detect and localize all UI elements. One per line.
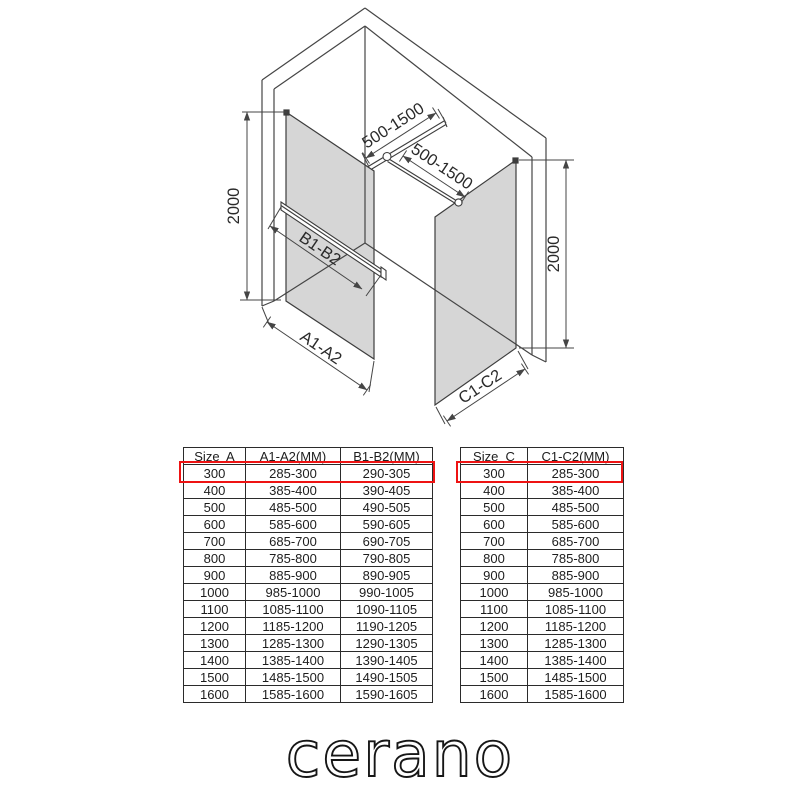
table-cell: 885-900 bbox=[246, 567, 341, 584]
table-cell: 1100 bbox=[184, 601, 246, 618]
table-row: 400385-400 bbox=[461, 482, 624, 499]
table-cell: 500 bbox=[184, 499, 246, 516]
table-cell: 1000 bbox=[461, 584, 528, 601]
table-header-row: Size A A1-A2(MM) B1-B2(MM) bbox=[184, 448, 433, 465]
table-cell: 300 bbox=[461, 465, 528, 482]
table-cell: 400 bbox=[461, 482, 528, 499]
table-row: 500485-500 bbox=[461, 499, 624, 516]
table-row: 16001585-16001590-1605 bbox=[184, 686, 433, 703]
table-cell: 885-900 bbox=[528, 567, 624, 584]
table-row: 15001485-1500 bbox=[461, 669, 624, 686]
table-row: 600585-600 bbox=[461, 516, 624, 533]
table-cell: 985-1000 bbox=[246, 584, 341, 601]
table-row: 600585-600590-605 bbox=[184, 516, 433, 533]
table-row: 14001385-1400 bbox=[461, 652, 624, 669]
table-row: 700685-700 bbox=[461, 533, 624, 550]
table-row: 14001385-14001390-1405 bbox=[184, 652, 433, 669]
table-cell: 485-500 bbox=[528, 499, 624, 516]
table-cell: 585-600 bbox=[528, 516, 624, 533]
dim-tick bbox=[443, 416, 450, 427]
table-row: 15001485-15001490-1505 bbox=[184, 669, 433, 686]
dim-ext bbox=[438, 109, 446, 123]
table-cell: 390-405 bbox=[341, 482, 433, 499]
table-cell: 585-600 bbox=[246, 516, 341, 533]
table-cell: 1485-1500 bbox=[246, 669, 341, 686]
table-cell: 1100 bbox=[461, 601, 528, 618]
dim-ext bbox=[369, 361, 374, 392]
size-table-a: Size A A1-A2(MM) B1-B2(MM) 300285-300290… bbox=[183, 447, 433, 703]
brand-logo-text: cerano bbox=[286, 718, 514, 791]
table-cell: 785-800 bbox=[528, 550, 624, 567]
col-header-size-a: Size A bbox=[184, 448, 246, 465]
table-cell: 685-700 bbox=[528, 533, 624, 550]
table-cell: 600 bbox=[184, 516, 246, 533]
table-cell: 385-400 bbox=[528, 482, 624, 499]
table-cell: 1485-1500 bbox=[528, 669, 624, 686]
col-header-a1a2: A1-A2(MM) bbox=[246, 448, 341, 465]
table-cell: 1600 bbox=[461, 686, 528, 703]
table-cell: 690-705 bbox=[341, 533, 433, 550]
glass-panel-c bbox=[435, 160, 516, 405]
right-wall-bottom-bevel bbox=[532, 355, 546, 362]
table-cell: 1190-1205 bbox=[341, 618, 433, 635]
table-cell: 1590-1605 bbox=[341, 686, 433, 703]
table-cell: 290-305 bbox=[341, 465, 433, 482]
table-row: 11001085-1100 bbox=[461, 601, 624, 618]
table-cell: 1285-1300 bbox=[246, 635, 341, 652]
table-row: 1000985-1000990-1005 bbox=[184, 584, 433, 601]
left-wall-top-outer bbox=[262, 8, 365, 80]
page: 2000 2000 500-1500 500-1500 A1-A2 B1-B2 … bbox=[0, 0, 800, 800]
table-row: 500485-500490-505 bbox=[184, 499, 433, 516]
table-row: 12001185-12001190-1205 bbox=[184, 618, 433, 635]
table-cell: 1300 bbox=[461, 635, 528, 652]
size-table-c: Size C C1-C2(MM) 300285-300400385-400500… bbox=[460, 447, 624, 703]
table-cell: 1185-1200 bbox=[246, 618, 341, 635]
table-row: 1000985-1000 bbox=[461, 584, 624, 601]
left-wall-bottom-bevel bbox=[262, 301, 274, 306]
table-cell: 790-805 bbox=[341, 550, 433, 567]
table-row: 11001085-11001090-1105 bbox=[184, 601, 433, 618]
table-cell: 1000 bbox=[184, 584, 246, 601]
table-cell: 1085-1100 bbox=[246, 601, 341, 618]
table-cell: 1585-1600 bbox=[528, 686, 624, 703]
table-cell: 1385-1400 bbox=[528, 652, 624, 669]
table-row: 700685-700690-705 bbox=[184, 533, 433, 550]
table-cell: 700 bbox=[461, 533, 528, 550]
table-cell: 1400 bbox=[184, 652, 246, 669]
table-cell: 1585-1600 bbox=[246, 686, 341, 703]
table-cell: 1085-1100 bbox=[528, 601, 624, 618]
table-cell: 400 bbox=[184, 482, 246, 499]
table-cell: 900 bbox=[184, 567, 246, 584]
table-cell: 990-1005 bbox=[341, 584, 433, 601]
table-cell: 300 bbox=[184, 465, 246, 482]
table-cell: 1200 bbox=[184, 618, 246, 635]
table-row: 13001285-13001290-1305 bbox=[184, 635, 433, 652]
col-header-b1b2: B1-B2(MM) bbox=[341, 448, 433, 465]
table-row: 900885-900 bbox=[461, 567, 624, 584]
technical-drawing: 2000 2000 500-1500 500-1500 A1-A2 B1-B2 … bbox=[0, 0, 800, 445]
mount-bracket-c bbox=[513, 158, 518, 163]
table-row: 800785-800 bbox=[461, 550, 624, 567]
table-cell: 1300 bbox=[184, 635, 246, 652]
table-row: 300285-300290-305 bbox=[184, 465, 433, 482]
table-cell: 890-905 bbox=[341, 567, 433, 584]
table-cell: 1500 bbox=[184, 669, 246, 686]
table-cell: 800 bbox=[184, 550, 246, 567]
table-cell: 590-605 bbox=[341, 516, 433, 533]
table-cell: 1090-1105 bbox=[341, 601, 433, 618]
table-row: 400385-400390-405 bbox=[184, 482, 433, 499]
table-row: 300285-300 bbox=[461, 465, 624, 482]
table-row: 800785-800790-805 bbox=[184, 550, 433, 567]
table-cell: 485-500 bbox=[246, 499, 341, 516]
stabilizer-bar-endcap bbox=[381, 267, 386, 280]
table-cell: 900 bbox=[461, 567, 528, 584]
table-cell: 985-1000 bbox=[528, 584, 624, 601]
table-cell: 1185-1200 bbox=[528, 618, 624, 635]
table-cell: 285-300 bbox=[528, 465, 624, 482]
dim-label-height-left: 2000 bbox=[225, 188, 243, 225]
dim-label-bar-right: 500-1500 bbox=[408, 140, 476, 193]
table-row: 13001285-1300 bbox=[461, 635, 624, 652]
table-cell: 1400 bbox=[461, 652, 528, 669]
ball-joint-2 bbox=[455, 199, 462, 206]
table-cell: 1285-1300 bbox=[528, 635, 624, 652]
col-header-size-c: Size C bbox=[461, 448, 528, 465]
brand-logo: cerano bbox=[0, 712, 800, 800]
ball-joint-1 bbox=[383, 153, 391, 161]
table-cell: 1290-1305 bbox=[341, 635, 433, 652]
table-cell: 1200 bbox=[461, 618, 528, 635]
table-cell: 490-505 bbox=[341, 499, 433, 516]
table-cell: 385-400 bbox=[246, 482, 341, 499]
dim-label-height-right: 2000 bbox=[545, 236, 563, 273]
table-cell: 785-800 bbox=[246, 550, 341, 567]
table-cell: 285-300 bbox=[246, 465, 341, 482]
table-cell: 1390-1405 bbox=[341, 652, 433, 669]
table-cell: 800 bbox=[461, 550, 528, 567]
table-cell: 1500 bbox=[461, 669, 528, 686]
table-cell: 600 bbox=[461, 516, 528, 533]
col-header-c1c2: C1-C2(MM) bbox=[528, 448, 624, 465]
table-cell: 1490-1505 bbox=[341, 669, 433, 686]
table-cell: 685-700 bbox=[246, 533, 341, 550]
table-row: 900885-900890-905 bbox=[184, 567, 433, 584]
table-cell: 1600 bbox=[184, 686, 246, 703]
table-cell: 700 bbox=[184, 533, 246, 550]
table-row: 16001585-1600 bbox=[461, 686, 624, 703]
left-wall-top-inner bbox=[274, 26, 365, 89]
table-row: 12001185-1200 bbox=[461, 618, 624, 635]
table-cell: 500 bbox=[461, 499, 528, 516]
table-cell: 1385-1400 bbox=[246, 652, 341, 669]
table-header-row: Size C C1-C2(MM) bbox=[461, 448, 624, 465]
